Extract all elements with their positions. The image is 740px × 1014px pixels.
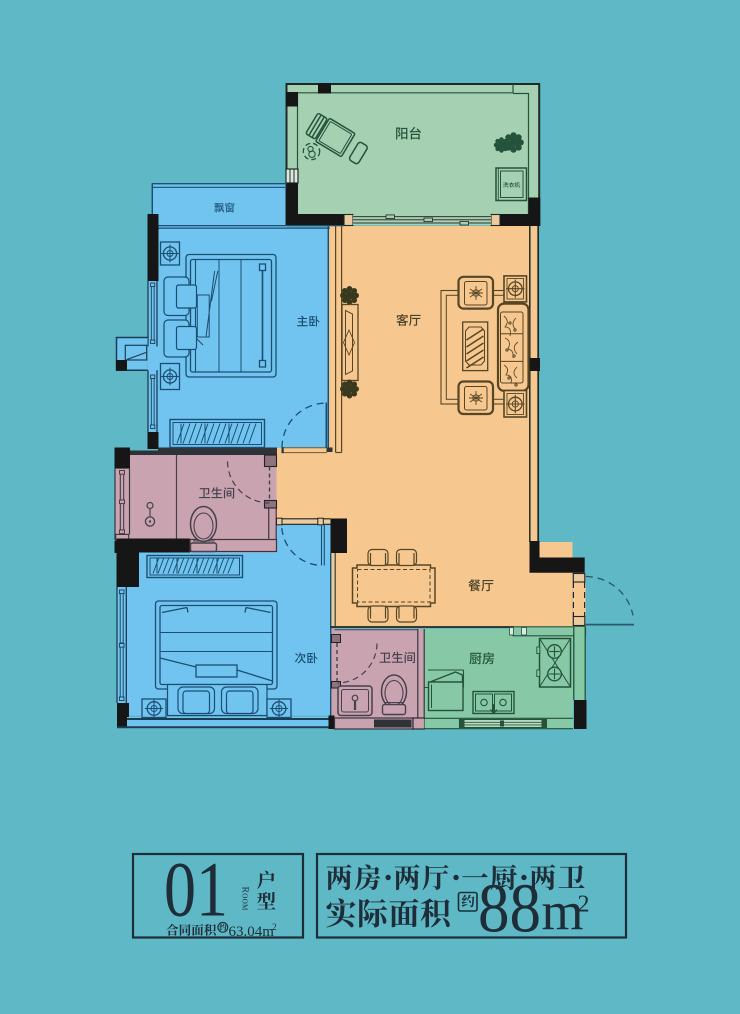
svg-text:2: 2 <box>578 892 590 918</box>
svg-text:01: 01 <box>164 846 228 933</box>
svg-text:Room: Room <box>240 887 250 912</box>
svg-text:63.04m: 63.04m <box>229 924 275 940</box>
svg-text:88: 88 <box>478 871 541 948</box>
svg-text:2: 2 <box>272 923 277 933</box>
